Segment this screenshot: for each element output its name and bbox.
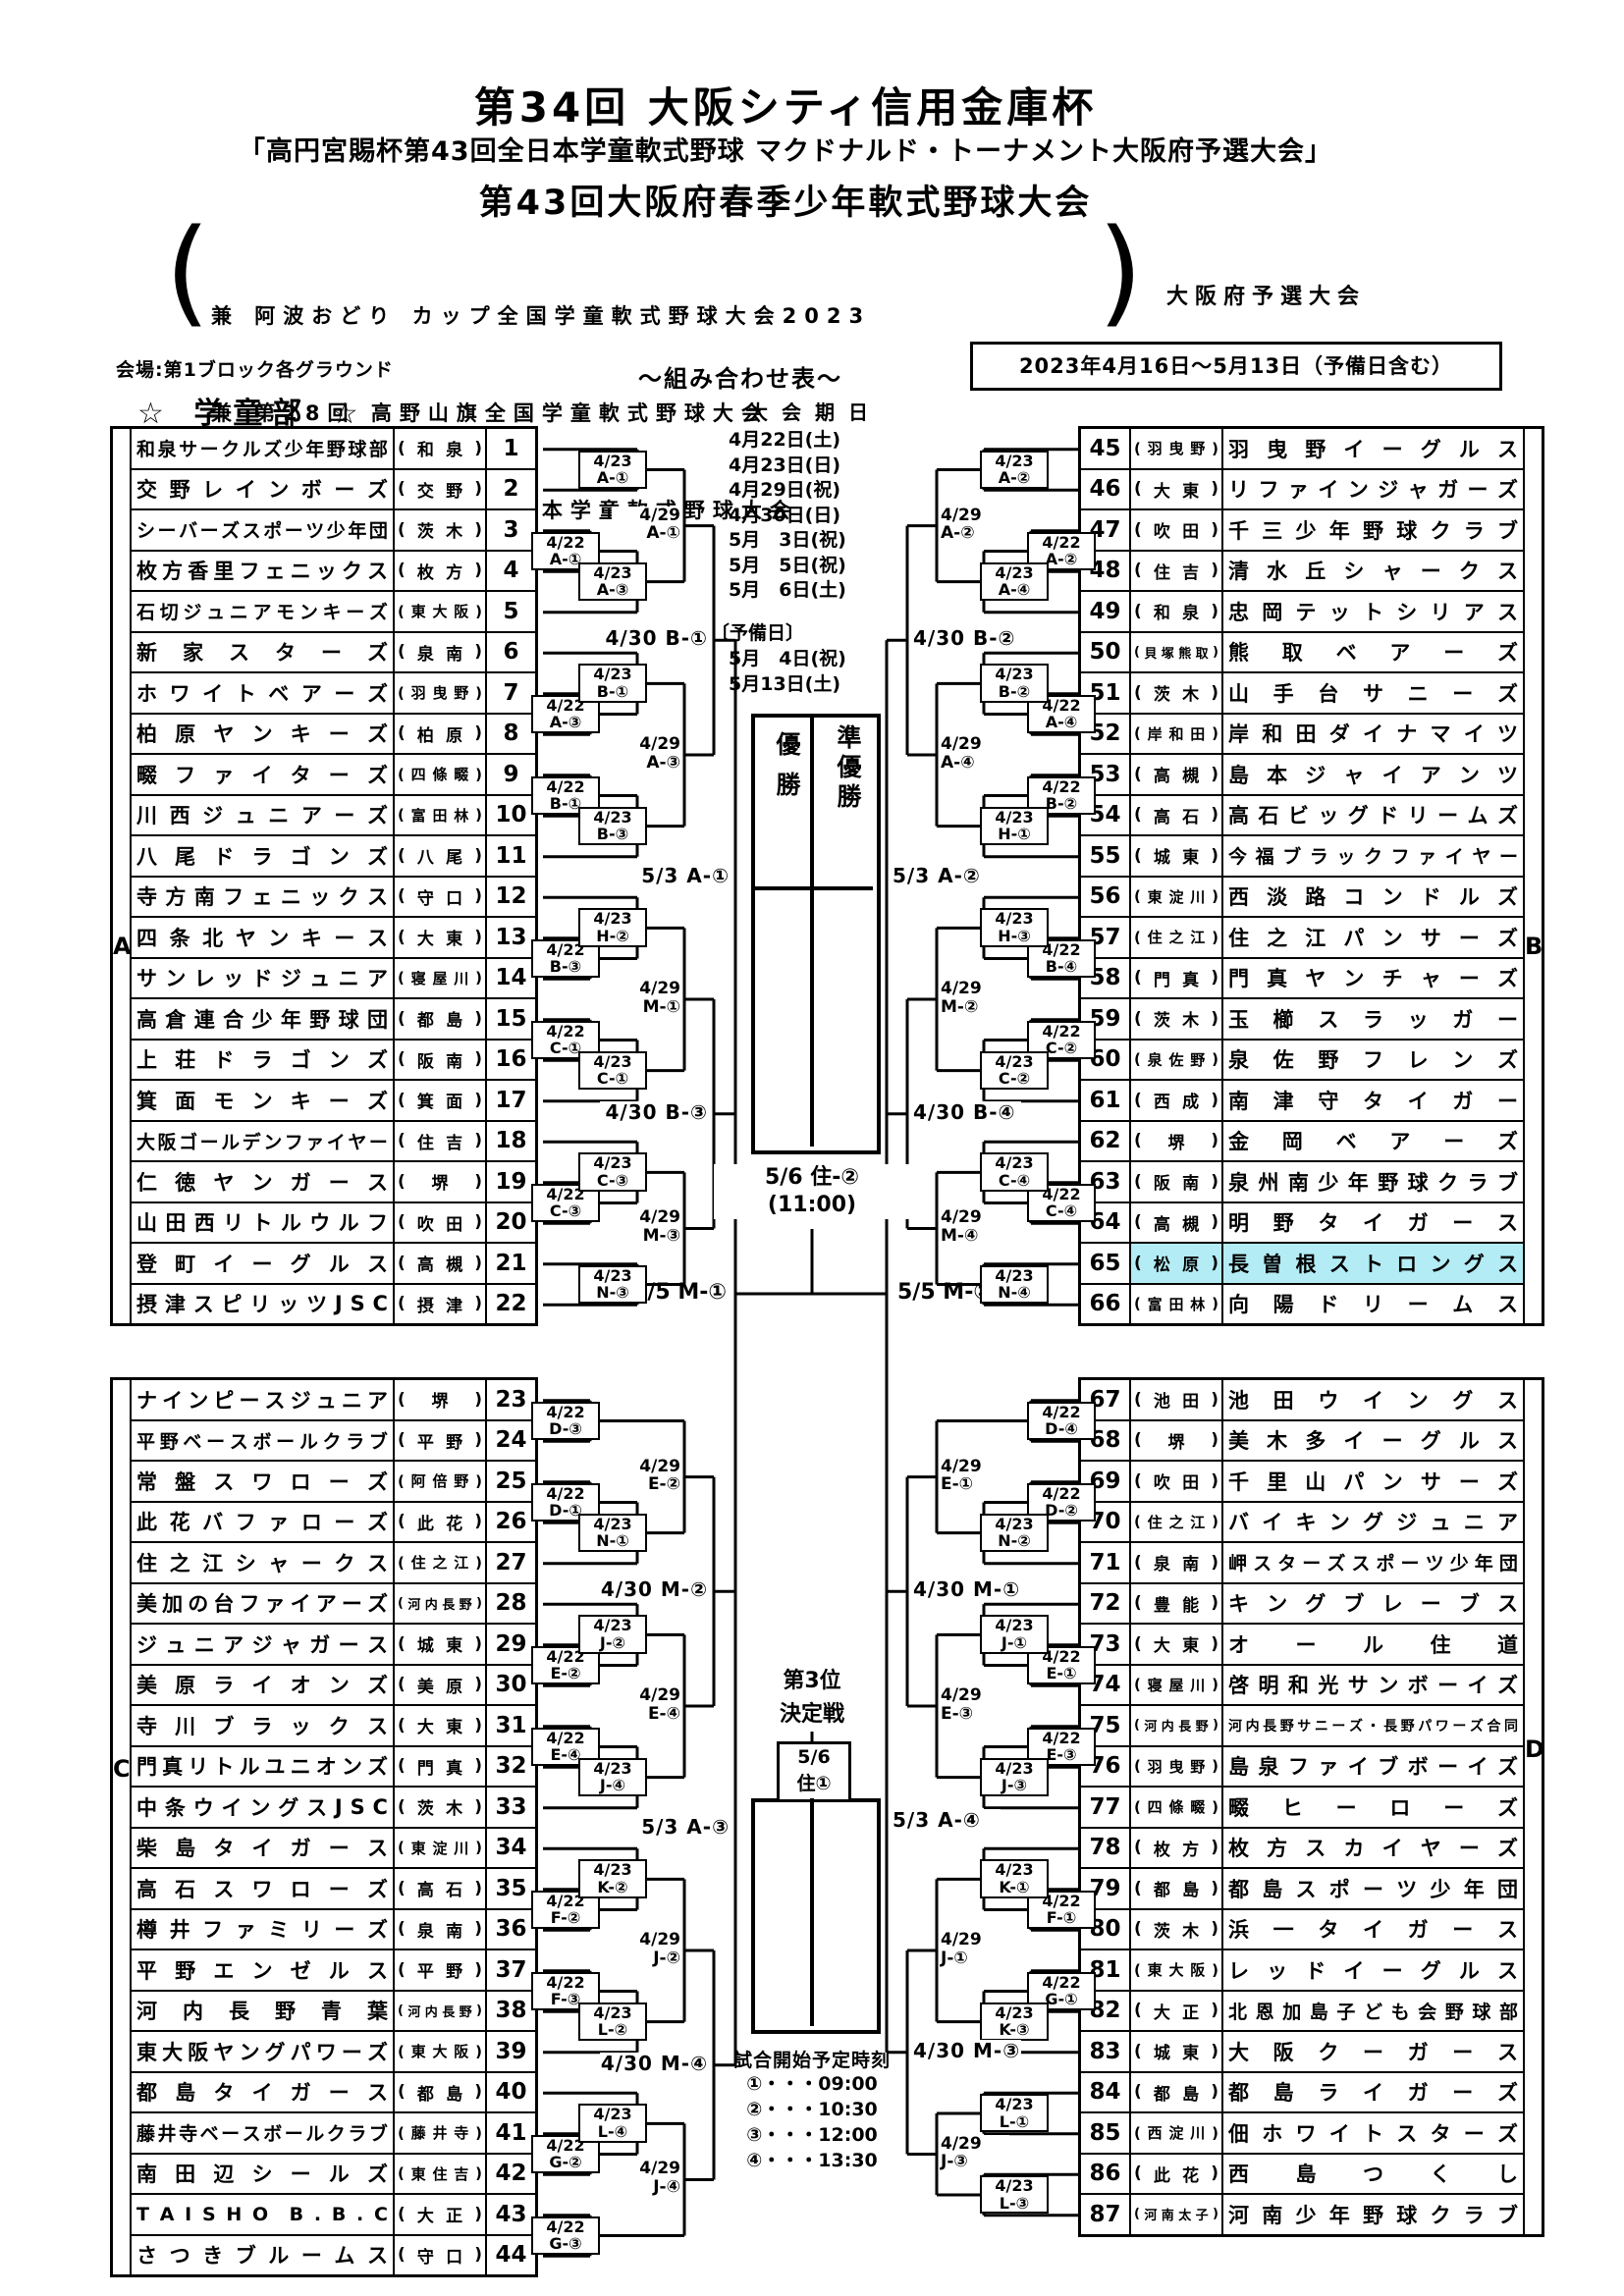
team-city: (茨木) — [1131, 673, 1221, 713]
match-label: 4/23A-④ — [980, 562, 1049, 601]
team-number: 10 — [487, 796, 535, 835]
team-city: (茨木) — [395, 1788, 485, 1827]
team-city: (門真) — [1131, 959, 1221, 998]
match-label: 4/23L-③ — [980, 2175, 1049, 2214]
team-number: 4 — [487, 552, 535, 591]
team-number: 37 — [487, 1950, 535, 1990]
team-name: 高倉連合少年野球団 — [132, 999, 393, 1039]
team-number: 19 — [487, 1162, 535, 1201]
team-number: 45 — [1081, 429, 1129, 468]
team-city: (富田林) — [395, 796, 485, 835]
team-name: 枚方スカイヤーズ — [1223, 1829, 1523, 1868]
team-number: 27 — [487, 1543, 535, 1582]
team-name: 高石ビッグドリームズ — [1223, 796, 1523, 835]
team-number: 29 — [487, 1625, 535, 1664]
team-city: (茨木) — [395, 510, 485, 550]
team-city: (貝塚熊取) — [1131, 633, 1221, 672]
third-place-result-box — [751, 1798, 881, 2034]
team-name: 河内長野青葉 — [132, 1992, 393, 2031]
team-number: 13 — [487, 918, 535, 957]
team-city: (西成) — [1131, 1081, 1221, 1120]
team-name: 島本ジャイアンツ — [1223, 755, 1523, 794]
team-number: 12 — [487, 878, 535, 917]
team-city: (此花) — [395, 1503, 485, 1542]
team-name: 四条北ヤンキース — [132, 918, 393, 957]
team-city: (守口) — [395, 2236, 485, 2275]
match-label: 4/23C-② — [980, 1051, 1049, 1090]
team-name: 山手台サニーズ — [1223, 673, 1523, 713]
match-label: 4/29M-④ — [941, 1208, 1009, 1245]
team-city: (高石) — [395, 1869, 485, 1908]
match-label: 4/23A-② — [980, 451, 1049, 489]
team-number: 36 — [487, 1910, 535, 1949]
team-city: (河南太子) — [1131, 2195, 1221, 2234]
team-name: 西島つくし — [1223, 2155, 1523, 2194]
team-name: 美原ライオンズ — [132, 1666, 393, 1705]
team-city: (四條畷) — [1131, 1788, 1221, 1827]
match-label: 4/30 M-③ — [913, 2040, 1021, 2061]
team-name: リファインジャガーズ — [1223, 470, 1523, 509]
match-label: 4/23L-① — [980, 2094, 1049, 2132]
team-city: (吹田) — [1131, 1462, 1221, 1501]
team-city: (八尾) — [395, 836, 485, 876]
third-place-line1: 第3位 — [724, 1665, 900, 1698]
team-name: 玉櫛スラッガー — [1223, 999, 1523, 1039]
team-city: (藤井寺) — [395, 2113, 485, 2153]
team-name: 住之江パンサーズ — [1223, 918, 1523, 957]
team-number: 65 — [1081, 1244, 1129, 1283]
team-name: ホワイトベアーズ — [132, 673, 393, 713]
team-name: サンレッドジュニア — [132, 959, 393, 998]
team-name: 摂津スピリッツJSC — [132, 1285, 393, 1324]
match-label: 4/29A-② — [941, 507, 1009, 543]
match-label: 4/29J-① — [941, 1931, 1009, 1967]
team-number: 14 — [487, 959, 535, 998]
team-name: 啓明和光サンボーイズ — [1223, 1666, 1523, 1705]
team-city: (四條畷) — [395, 755, 485, 794]
team-number: 17 — [487, 1081, 535, 1120]
team-name: 住之江シャークス — [132, 1543, 393, 1582]
team-city: (高槻) — [395, 1244, 485, 1283]
team-name: シーバーズスポーツ少年団 — [132, 510, 393, 550]
team-city: (柏原) — [395, 715, 485, 754]
team-city: (東大阪) — [1131, 1950, 1221, 1990]
team-name: 美加の台ファイアーズ — [132, 1584, 393, 1624]
team-number: 86 — [1081, 2155, 1129, 2194]
match-label: 4/30 M-② — [600, 1578, 708, 1600]
team-number: 6 — [487, 633, 535, 672]
team-number: 18 — [487, 1122, 535, 1161]
team-city: (羽曳野) — [1131, 1747, 1221, 1787]
match-label: 4/22G-③ — [531, 2216, 600, 2255]
match-label: 4/23B-① — [578, 664, 647, 702]
team-city: (大正) — [1131, 1992, 1221, 2031]
team-name: 美木多イーグルス — [1223, 1421, 1523, 1461]
team-number: 26 — [487, 1503, 535, 1542]
team-number: 1 — [487, 429, 535, 468]
team-number: 78 — [1081, 1829, 1129, 1868]
team-city: (大東) — [1131, 1625, 1221, 1664]
team-city: (羽曳野) — [395, 673, 485, 713]
team-name: 都島タイガース — [132, 2073, 393, 2112]
team-city: (吹田) — [395, 1203, 485, 1243]
block-strip-D: D — [1525, 1380, 1542, 2234]
team-city: (豊能) — [1131, 1584, 1221, 1624]
match-label: 4/23J-④ — [578, 1758, 647, 1796]
match-label: 4/23J-② — [578, 1615, 647, 1653]
match-label: 4/22D-④ — [1027, 1402, 1096, 1440]
block-letter-B: B — [1525, 933, 1542, 960]
match-label: 4/29A-④ — [941, 735, 1009, 772]
match-label: 4/29A-③ — [612, 735, 680, 772]
team-city: (富田林) — [1131, 1285, 1221, 1324]
team-name: 平野ベースボールクラブ — [132, 1421, 393, 1461]
match-label: 4/29E-① — [941, 1458, 1009, 1494]
match-label: 4/30 M-① — [913, 1578, 1021, 1600]
team-number: 7 — [487, 673, 535, 713]
team-name: 東大阪ヤングパワーズ — [132, 2032, 393, 2071]
team-name: 河内長野サニーズ・長野パワーズ合同 — [1223, 1706, 1523, 1745]
team-number: 30 — [487, 1666, 535, 1705]
team-number: 61 — [1081, 1081, 1129, 1120]
match-label: 4/23J-① — [980, 1615, 1049, 1653]
team-number: 43 — [487, 2195, 535, 2234]
team-number: 21 — [487, 1244, 535, 1283]
team-number: 28 — [487, 1584, 535, 1624]
match-label: 4/23K-① — [980, 1859, 1049, 1897]
team-city: (羽曳野) — [1131, 429, 1221, 468]
team-number: 35 — [487, 1869, 535, 1908]
team-city: (摂津) — [395, 1285, 485, 1324]
team-number: 44 — [487, 2236, 535, 2275]
team-city: (泉南) — [395, 633, 485, 672]
team-name: レッドイーグルス — [1223, 1950, 1523, 1990]
match-label: 4/23B-③ — [578, 807, 647, 845]
team-city: (堺) — [395, 1162, 485, 1201]
match-label: 4/29E-④ — [612, 1686, 680, 1723]
team-name: 柏原ヤンキーズ — [132, 715, 393, 754]
team-name: 和泉サークルズ少年野球部 — [132, 429, 393, 468]
team-name: TAISHO B.B.C — [132, 2195, 393, 2234]
team-name: 北恩加島子ども会野球部 — [1223, 1992, 1523, 2031]
match-label: 4/23N-④ — [980, 1265, 1049, 1304]
team-city: (東大阪) — [395, 2032, 485, 2071]
team-city: (美原) — [395, 1666, 485, 1705]
team-number: 84 — [1081, 2073, 1129, 2112]
team-name: 泉州南少年野球クラブ — [1223, 1162, 1523, 1201]
team-name: 今福ブラックファイヤー — [1223, 836, 1523, 876]
block-letter-A: A — [113, 933, 130, 960]
team-name: 島泉ファイブボーイズ — [1223, 1747, 1523, 1787]
team-name: 樽井ファミリーズ — [132, 1910, 393, 1949]
final-match-label: 5/6 住-② (11:00) — [714, 1164, 910, 1219]
third-place-result-divider — [810, 1798, 814, 2026]
team-city: (都島) — [1131, 2073, 1221, 2112]
team-number: 49 — [1081, 592, 1129, 631]
match-label: 4/23B-② — [980, 664, 1049, 702]
match-label: 4/23A-③ — [578, 562, 647, 601]
team-name: 清水丘シャークス — [1223, 552, 1523, 591]
final-match-time: (11:00) — [714, 1192, 910, 1219]
match-label: 4/30 M-④ — [600, 2053, 708, 2074]
match-label: 4/30 B-④ — [913, 1101, 1021, 1123]
team-city: (大東) — [395, 1706, 485, 1745]
team-name: 池田ウイングス — [1223, 1380, 1523, 1419]
team-city: (大東) — [1131, 470, 1221, 509]
match-label: 4/23J-③ — [980, 1758, 1049, 1796]
match-label: 4/23H-② — [578, 908, 647, 946]
match-label: 4/23H-③ — [980, 908, 1049, 946]
team-name: 寺川ブラックス — [132, 1706, 393, 1745]
team-name: 川西ジュニアーズ — [132, 796, 393, 835]
team-name: 明野タイガース — [1223, 1203, 1523, 1243]
team-city: (城東) — [1131, 836, 1221, 876]
match-label: 4/23N-③ — [578, 1265, 647, 1304]
team-number: 72 — [1081, 1584, 1129, 1624]
team-city: (堺) — [1131, 1122, 1221, 1161]
match-label: 4/30 B-② — [913, 627, 1021, 649]
team-city: (河内長野) — [395, 1584, 485, 1624]
match-label: 5/3 A-① — [622, 865, 730, 886]
team-name: 浜一タイガース — [1223, 1910, 1523, 1949]
team-city: (茨木) — [1131, 1910, 1221, 1949]
team-name: 向陽ドリームス — [1223, 1285, 1523, 1324]
team-number: 11 — [487, 836, 535, 876]
team-name: 千三少年野球クラブ — [1223, 510, 1523, 550]
team-city: (高槻) — [1131, 1203, 1221, 1243]
team-name: 枚方香里フェニックス — [132, 552, 393, 591]
team-table-C: Cナインピースジュニア(堺)23平野ベースボールクラブ(平野)24常盤スワローズ… — [110, 1377, 538, 2277]
team-number: 8 — [487, 715, 535, 754]
team-number: 33 — [487, 1788, 535, 1827]
team-city: (池田) — [1131, 1380, 1221, 1419]
team-number: 23 — [487, 1380, 535, 1419]
team-city: (城東) — [395, 1625, 485, 1664]
team-city: (交野) — [395, 470, 485, 509]
team-city: (和泉) — [395, 429, 485, 468]
block-letter-D: D — [1525, 1735, 1542, 1763]
team-city: (枚方) — [395, 552, 485, 591]
match-label: 4/29A-① — [612, 507, 680, 543]
team-number: 66 — [1081, 1285, 1129, 1324]
team-name: 泉佐野フレンズ — [1223, 1041, 1523, 1080]
match-label: 4/23C-④ — [980, 1152, 1049, 1191]
team-name: 高石スワローズ — [132, 1869, 393, 1908]
team-city: (堺) — [395, 1380, 485, 1419]
team-name: 平野エンゼルス — [132, 1950, 393, 1990]
team-number: 31 — [487, 1706, 535, 1745]
match-label: 4/23L-② — [578, 2002, 647, 2041]
match-label: 4/29E-③ — [941, 1686, 1009, 1723]
team-city: (住之江) — [1131, 1503, 1221, 1542]
team-name: 千里山パンサーズ — [1223, 1462, 1523, 1501]
third-place-title: 第3位 決定戦 — [724, 1665, 900, 1732]
team-number: 87 — [1081, 2195, 1129, 2234]
team-number: 55 — [1081, 836, 1129, 876]
team-city: (阪南) — [1131, 1162, 1221, 1201]
team-city: (泉南) — [1131, 1543, 1221, 1582]
team-name: 佃ホワイトスターズ — [1223, 2113, 1523, 2153]
team-name: 畷ファイターズ — [132, 755, 393, 794]
result-box-divider — [810, 714, 814, 1147]
team-city: (大東) — [395, 918, 485, 957]
team-city: (河内長野) — [395, 1992, 485, 2031]
team-city: (大正) — [395, 2195, 485, 2234]
block-strip-B: B — [1525, 429, 1542, 1323]
team-city: (東住吉) — [395, 2155, 485, 2194]
team-name: ジュニアジャガース — [132, 1625, 393, 1664]
team-table-D: D67(池田)池田ウイングス68(堺)美木多イーグルス69(吹田)千里山パンサー… — [1078, 1377, 1544, 2237]
team-name: バイキングジュニア — [1223, 1503, 1523, 1542]
team-city: (此花) — [1131, 2155, 1221, 2194]
team-city: (和泉) — [1131, 592, 1221, 631]
team-name: 藤井寺ベースボールクラブ — [132, 2113, 393, 2153]
team-name: 上荘ドラゴンズ — [132, 1041, 393, 1080]
team-city: (寝屋川) — [1131, 1666, 1221, 1705]
team-city: (住之江) — [395, 1543, 485, 1582]
team-number: 25 — [487, 1462, 535, 1501]
team-name: 此花バファローズ — [132, 1503, 393, 1542]
third-place-venue: 住① — [780, 1771, 848, 1797]
team-name: 忠岡テットシリアス — [1223, 592, 1523, 631]
runner-up-label: 準優勝 — [830, 724, 865, 813]
team-name: 羽曳野イーグルス — [1223, 429, 1523, 468]
team-name: 寺方南フェニックス — [132, 878, 393, 917]
block-strip-C: C — [113, 1380, 130, 2274]
team-number: 16 — [487, 1041, 535, 1080]
team-city: (平野) — [395, 1950, 485, 1990]
team-name: さつきブルームス — [132, 2236, 393, 2275]
match-label: 4/29M-① — [612, 980, 680, 1016]
team-name: 南田辺シールズ — [132, 2155, 393, 2194]
match-label: 4/23K-② — [578, 1859, 647, 1897]
team-city: (高石) — [1131, 796, 1221, 835]
team-name: 岸和田ダイナマイツ — [1223, 715, 1523, 754]
team-city: (西淀川) — [1131, 2113, 1221, 2153]
team-name: 登町イーグルス — [132, 1244, 393, 1283]
team-name: 金岡ベアーズ — [1223, 1122, 1523, 1161]
team-city: (平野) — [395, 1421, 485, 1461]
team-name: 畷ヒーローズ — [1223, 1788, 1523, 1827]
tournament-sheet: 第34回 大阪シティ信用金庫杯 「高円宮賜杯第43回全日本学童軟式野球 マクドナ… — [0, 0, 1624, 2296]
team-name: 石切ジュニアモンキーズ — [132, 592, 393, 631]
team-name: キングブレーブス — [1223, 1584, 1523, 1624]
team-city: (住吉) — [1131, 552, 1221, 591]
team-number: 2 — [487, 470, 535, 509]
team-name: 八尾ドラゴンズ — [132, 836, 393, 876]
team-city: (箕面) — [395, 1081, 485, 1120]
team-number: 34 — [487, 1829, 535, 1868]
match-label: 4/23C-③ — [578, 1152, 647, 1191]
match-label: 4/29E-② — [612, 1458, 680, 1494]
team-name: 南津守タイガー — [1223, 1081, 1523, 1120]
champion-label: 優勝 — [769, 731, 804, 812]
team-number: 3 — [487, 510, 535, 550]
match-label: 4/29J-② — [612, 1931, 680, 1967]
team-city: (門真) — [395, 1747, 485, 1787]
team-name: 河南少年野球クラブ — [1223, 2195, 1523, 2234]
match-label: 4/22D-③ — [531, 1402, 600, 1440]
team-name: 長曽根ストロングス — [1223, 1244, 1523, 1283]
team-name: ナインピースジュニア — [132, 1380, 393, 1419]
match-label: 4/29M-② — [941, 980, 1009, 1016]
team-number: 15 — [487, 999, 535, 1039]
team-number: 38 — [487, 1992, 535, 2031]
team-name: 山田西リトルウルフ — [132, 1203, 393, 1243]
team-name: 都島スポーツ少年団 — [1223, 1869, 1523, 1908]
team-city: (東大阪) — [395, 592, 485, 631]
team-city: (高槻) — [1131, 755, 1221, 794]
team-city: (岸和田) — [1131, 715, 1221, 754]
match-label: 5/3 A-④ — [893, 1809, 1001, 1831]
final-match-code: 5/6 住-② — [714, 1164, 910, 1192]
team-city: (都島) — [395, 999, 485, 1039]
team-table-B: B45(羽曳野)羽曳野イーグルス46(大東)リファインジャガーズ47(吹田)千三… — [1078, 426, 1544, 1326]
team-number: 56 — [1081, 878, 1129, 917]
team-city: (住吉) — [395, 1122, 485, 1161]
match-label: 4/30 B-① — [600, 627, 708, 649]
result-box-rule — [751, 886, 873, 890]
team-city: (吹田) — [1131, 510, 1221, 550]
team-city: (堺) — [1131, 1421, 1221, 1461]
team-city: (守口) — [395, 878, 485, 917]
team-name: オール住道 — [1223, 1625, 1523, 1664]
team-number: 71 — [1081, 1543, 1129, 1582]
team-number: 50 — [1081, 633, 1129, 672]
team-name: 中条ウイングスJSC — [132, 1788, 393, 1827]
match-label: 4/29J-④ — [612, 2160, 680, 2196]
team-number: 42 — [487, 2155, 535, 2194]
team-number: 5 — [487, 592, 535, 631]
team-city: (阿倍野) — [395, 1462, 485, 1501]
team-name: 柴島タイガース — [132, 1829, 393, 1868]
match-label: 4/23L-④ — [578, 2104, 647, 2142]
team-name: 熊取ベアーズ — [1223, 633, 1523, 672]
team-city: (阪南) — [395, 1041, 485, 1080]
team-name: 大阪クーガース — [1223, 2032, 1523, 2071]
match-label: 4/23C-① — [578, 1051, 647, 1090]
team-city: (河内長野) — [1131, 1706, 1221, 1745]
team-number: 24 — [487, 1421, 535, 1461]
third-place-match-box: 5/6 住① — [777, 1741, 851, 1802]
team-city: (泉南) — [395, 1910, 485, 1949]
team-city: (住之江) — [1131, 918, 1221, 957]
team-name: 西淡路コンドルズ — [1223, 878, 1523, 917]
team-name: 仁徳ヤンガース — [132, 1162, 393, 1201]
team-number: 9 — [487, 755, 535, 794]
match-label: 4/23A-① — [578, 451, 647, 489]
team-number: 20 — [487, 1203, 535, 1243]
match-label: 4/29M-③ — [612, 1208, 680, 1245]
team-number: 77 — [1081, 1788, 1129, 1827]
match-label: 4/23N-① — [578, 1514, 647, 1552]
team-number: 22 — [487, 1285, 535, 1324]
team-name: 都島ライガーズ — [1223, 2073, 1523, 2112]
match-label: 4/23K-③ — [980, 2002, 1049, 2041]
team-city: (都島) — [1131, 1869, 1221, 1908]
team-table-A: A和泉サークルズ少年野球部(和泉)1交野レインボーズ(交野)2シーバーズスポーツ… — [110, 426, 538, 1326]
team-city: (東淀川) — [1131, 878, 1221, 917]
team-number: 83 — [1081, 2032, 1129, 2071]
team-number: 40 — [487, 2073, 535, 2112]
team-number: 46 — [1081, 470, 1129, 509]
third-place-date: 5/6 — [780, 1744, 848, 1771]
team-city: (寝屋川) — [395, 959, 485, 998]
match-label: 4/23N-② — [980, 1514, 1049, 1552]
match-label: 4/23H-① — [980, 807, 1049, 845]
team-city: (泉佐野) — [1131, 1041, 1221, 1080]
team-name: 新家スターズ — [132, 633, 393, 672]
